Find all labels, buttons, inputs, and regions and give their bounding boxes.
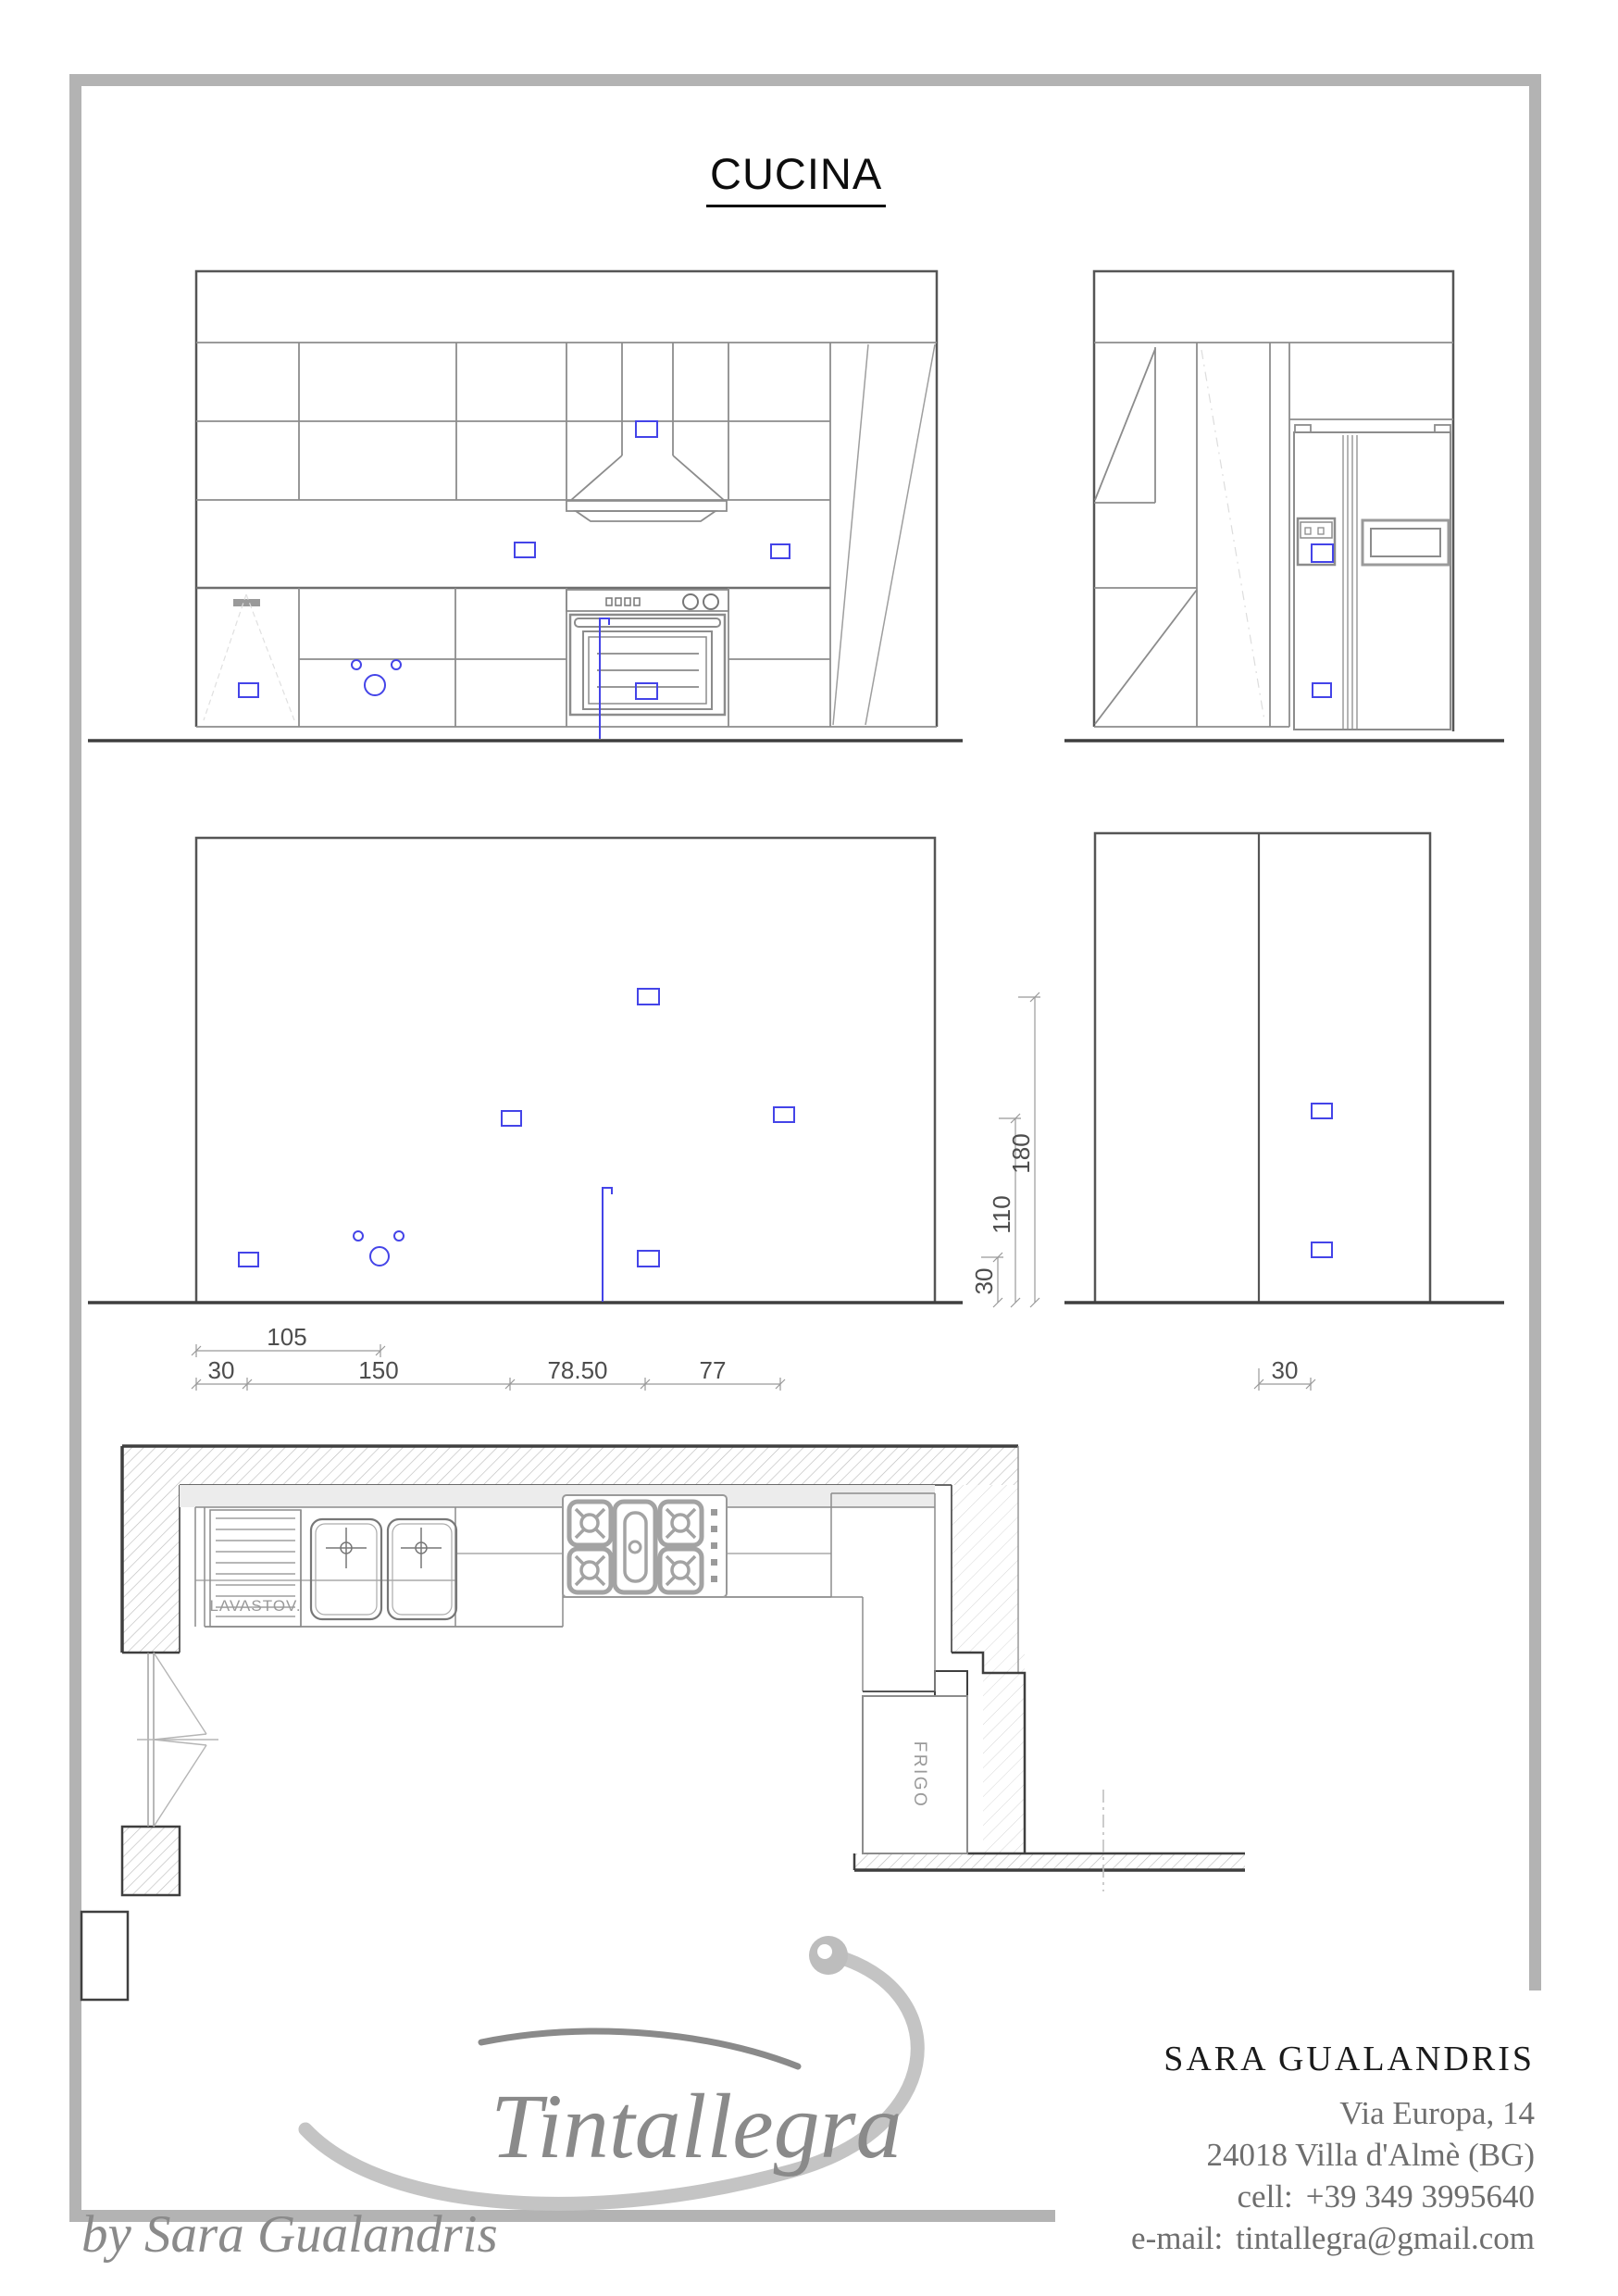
dim-30-left: 30 <box>208 1356 235 1384</box>
dim-30-right: 30 <box>1272 1356 1299 1384</box>
gas-line-symbol <box>603 1188 612 1302</box>
fridge-dispenser <box>1298 518 1335 565</box>
wall-utilities-front <box>88 838 963 1303</box>
logo-byline-text: by Sara Gualandris <box>81 2205 498 2264</box>
plan-return-unit <box>831 1493 935 1691</box>
dim-150: 150 <box>358 1356 398 1384</box>
dim-height-180: 180 <box>1007 1133 1035 1173</box>
fridge-label: FRIGO <box>910 1741 929 1809</box>
contact-email-address: tintallegra@gmail.com <box>1236 2220 1535 2256</box>
wall-pier <box>81 1912 128 2000</box>
logo-t-swash <box>481 2031 798 2066</box>
cad-drawing: 105 30 150 78.50 77 30 180 110 30 <box>0 0 1618 2296</box>
logo-brand-text: Tintallegra <box>491 2075 902 2177</box>
range-hood <box>566 343 727 521</box>
oven-front <box>566 590 728 715</box>
dishwasher-label: LAVASTOV. <box>209 1597 301 1615</box>
elevation-front-wall <box>88 271 963 741</box>
fridge-display <box>1363 520 1449 565</box>
contact-email-label: e-mail: <box>1131 2220 1223 2256</box>
floor-plan <box>81 1446 1245 2000</box>
contact-cell-label: cell: <box>1238 2178 1293 2215</box>
dim-78-50: 78.50 <box>547 1356 607 1384</box>
dim-105: 105 <box>267 1323 306 1351</box>
dishwasher-front <box>204 594 294 720</box>
drawing-sheet: CUCINA <box>0 0 1618 2296</box>
plan-sink <box>311 1519 456 1619</box>
electrical-outlet-symbols <box>1312 544 1333 697</box>
contact-name: SARA GUALANDRIS <box>1131 2039 1535 2079</box>
dim-height-110: 110 <box>988 1195 1015 1233</box>
contact-cell-number: +39 349 3995640 <box>1306 2178 1535 2215</box>
elevation-side-wall <box>1064 271 1504 741</box>
contact-address2: 24018 Villa d'Almè (BG) <box>1131 2134 1535 2176</box>
window-symbol <box>137 1653 218 1827</box>
wall-utilities-side <box>1064 833 1504 1303</box>
brand-logo: Tintallegra by Sara Gualandris <box>81 1936 917 2264</box>
dim-height-30: 30 <box>970 1268 998 1295</box>
contact-block: SARA GUALANDRIS Via Europa, 14 24018 Vil… <box>1131 2039 1535 2259</box>
contact-cell: cell:+39 349 3995640 <box>1131 2176 1535 2217</box>
plan-cooktop <box>563 1495 727 1597</box>
dim-77: 77 <box>700 1356 727 1384</box>
dimension-lines <box>192 992 1315 1391</box>
contact-email: e-mail:tintallegra@gmail.com <box>1131 2217 1535 2259</box>
contact-address1: Via Europa, 14 <box>1131 2092 1535 2134</box>
